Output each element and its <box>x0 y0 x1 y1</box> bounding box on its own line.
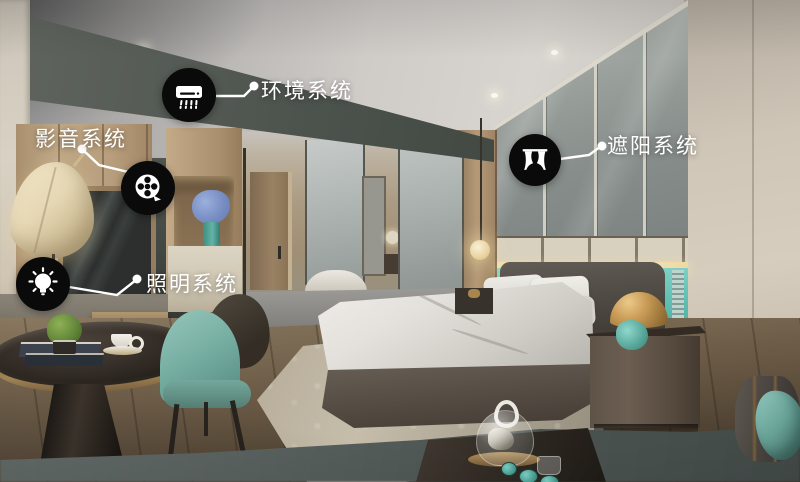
callout-environment-badge <box>162 68 216 122</box>
callout-lighting-label: 照明系统 <box>146 268 238 298</box>
teal-dish <box>501 462 517 476</box>
plant-pot <box>53 340 76 354</box>
callout-lighting-badge <box>16 257 70 311</box>
saucer <box>103 346 142 355</box>
callout-shading-label: 遮阳系统 <box>607 130 699 160</box>
teal-dish <box>540 475 559 482</box>
light-bulb-icon <box>25 266 61 302</box>
duvet-fold <box>451 328 528 356</box>
glass-frame <box>643 0 646 250</box>
curtain-icon <box>518 143 552 177</box>
bathroom-mirror <box>362 176 386 276</box>
frosted-glass-door <box>305 140 365 285</box>
teal-dish <box>519 469 538 482</box>
ceiling-spotlight <box>491 93 498 98</box>
book <box>24 353 104 366</box>
door-handle <box>278 246 281 259</box>
nightstand <box>590 336 700 428</box>
film-reel-icon <box>130 170 166 206</box>
ceiling-spotlight <box>551 50 558 55</box>
chair-leg <box>204 402 208 436</box>
floor-lamp-pole <box>243 148 246 312</box>
pendant-cord <box>480 118 482 242</box>
pendant-light <box>470 240 490 260</box>
hotel-room-annotated-photo: 环境系统 影音系统 照明系统 遮阳系统 <box>0 0 800 482</box>
entry-door <box>250 172 292 290</box>
callout-shading-badge <box>509 134 561 186</box>
callout-environment-label: 环境系统 <box>261 75 353 105</box>
gold-decor <box>468 289 480 298</box>
flower-vase <box>203 222 220 246</box>
glass-cup <box>537 456 561 475</box>
callout-audio-video-badge <box>121 161 175 215</box>
glass-cloche <box>476 410 534 466</box>
air-conditioner-icon <box>171 77 207 113</box>
teal-vase <box>616 320 648 350</box>
frosted-glass-door <box>398 142 464 312</box>
callout-audio-video-label: 影音系统 <box>35 123 127 153</box>
